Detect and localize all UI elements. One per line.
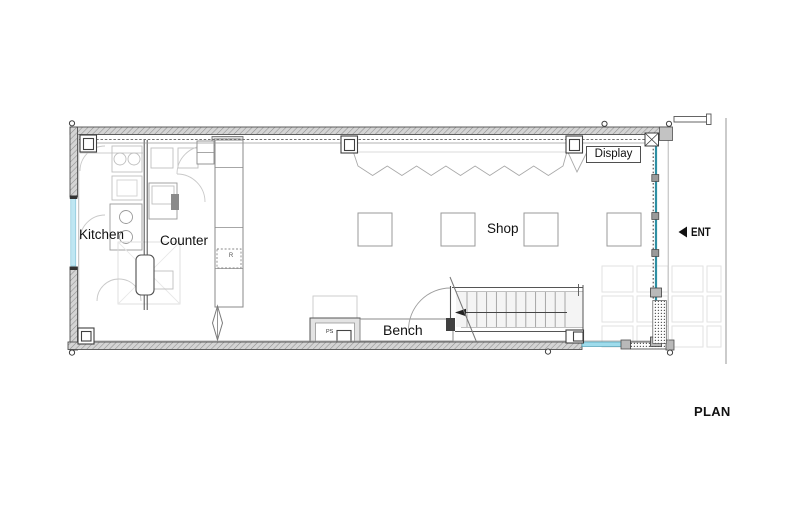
counter-bar <box>197 137 243 308</box>
column <box>341 136 358 153</box>
floor-plan-drawing <box>0 0 786 515</box>
column <box>566 330 584 343</box>
west-window <box>70 196 78 271</box>
column <box>566 136 583 153</box>
sheet-title: PLAN <box>694 405 731 418</box>
shop-table <box>358 213 392 246</box>
room-label-counter: Counter <box>160 234 208 248</box>
shop-canopy <box>352 148 589 176</box>
entrance-arrow-icon <box>679 227 688 238</box>
pipe-shaft-label: PS <box>326 330 333 336</box>
shop-table <box>607 213 641 246</box>
kitchen-island <box>136 255 154 295</box>
shop-table <box>441 213 475 246</box>
refrigerator-label: R <box>221 253 241 259</box>
entrance-label: ENT <box>691 226 711 238</box>
shop-table <box>524 213 558 246</box>
left-wall-lower <box>70 267 78 350</box>
storefront-glazing <box>645 127 673 350</box>
floor-plan-sheet: Kitchen Counter Shop Bench Display PS R … <box>0 0 786 515</box>
bottom-wall <box>68 342 582 350</box>
pipe-shaft <box>310 296 360 344</box>
top-wall <box>70 127 672 135</box>
pivot-door-symbol <box>213 306 223 340</box>
corner-post <box>660 127 673 141</box>
left-wall-upper <box>70 127 78 197</box>
display-label-box: Display <box>586 146 641 163</box>
room-label-shop: Shop <box>487 222 519 236</box>
x-brace-column <box>645 133 659 146</box>
entry-screen <box>653 301 667 344</box>
column <box>80 135 97 152</box>
room-label-kitchen: Kitchen <box>79 228 124 242</box>
site-fence <box>674 114 711 125</box>
column <box>78 328 94 344</box>
bench-label: Bench <box>383 323 423 337</box>
